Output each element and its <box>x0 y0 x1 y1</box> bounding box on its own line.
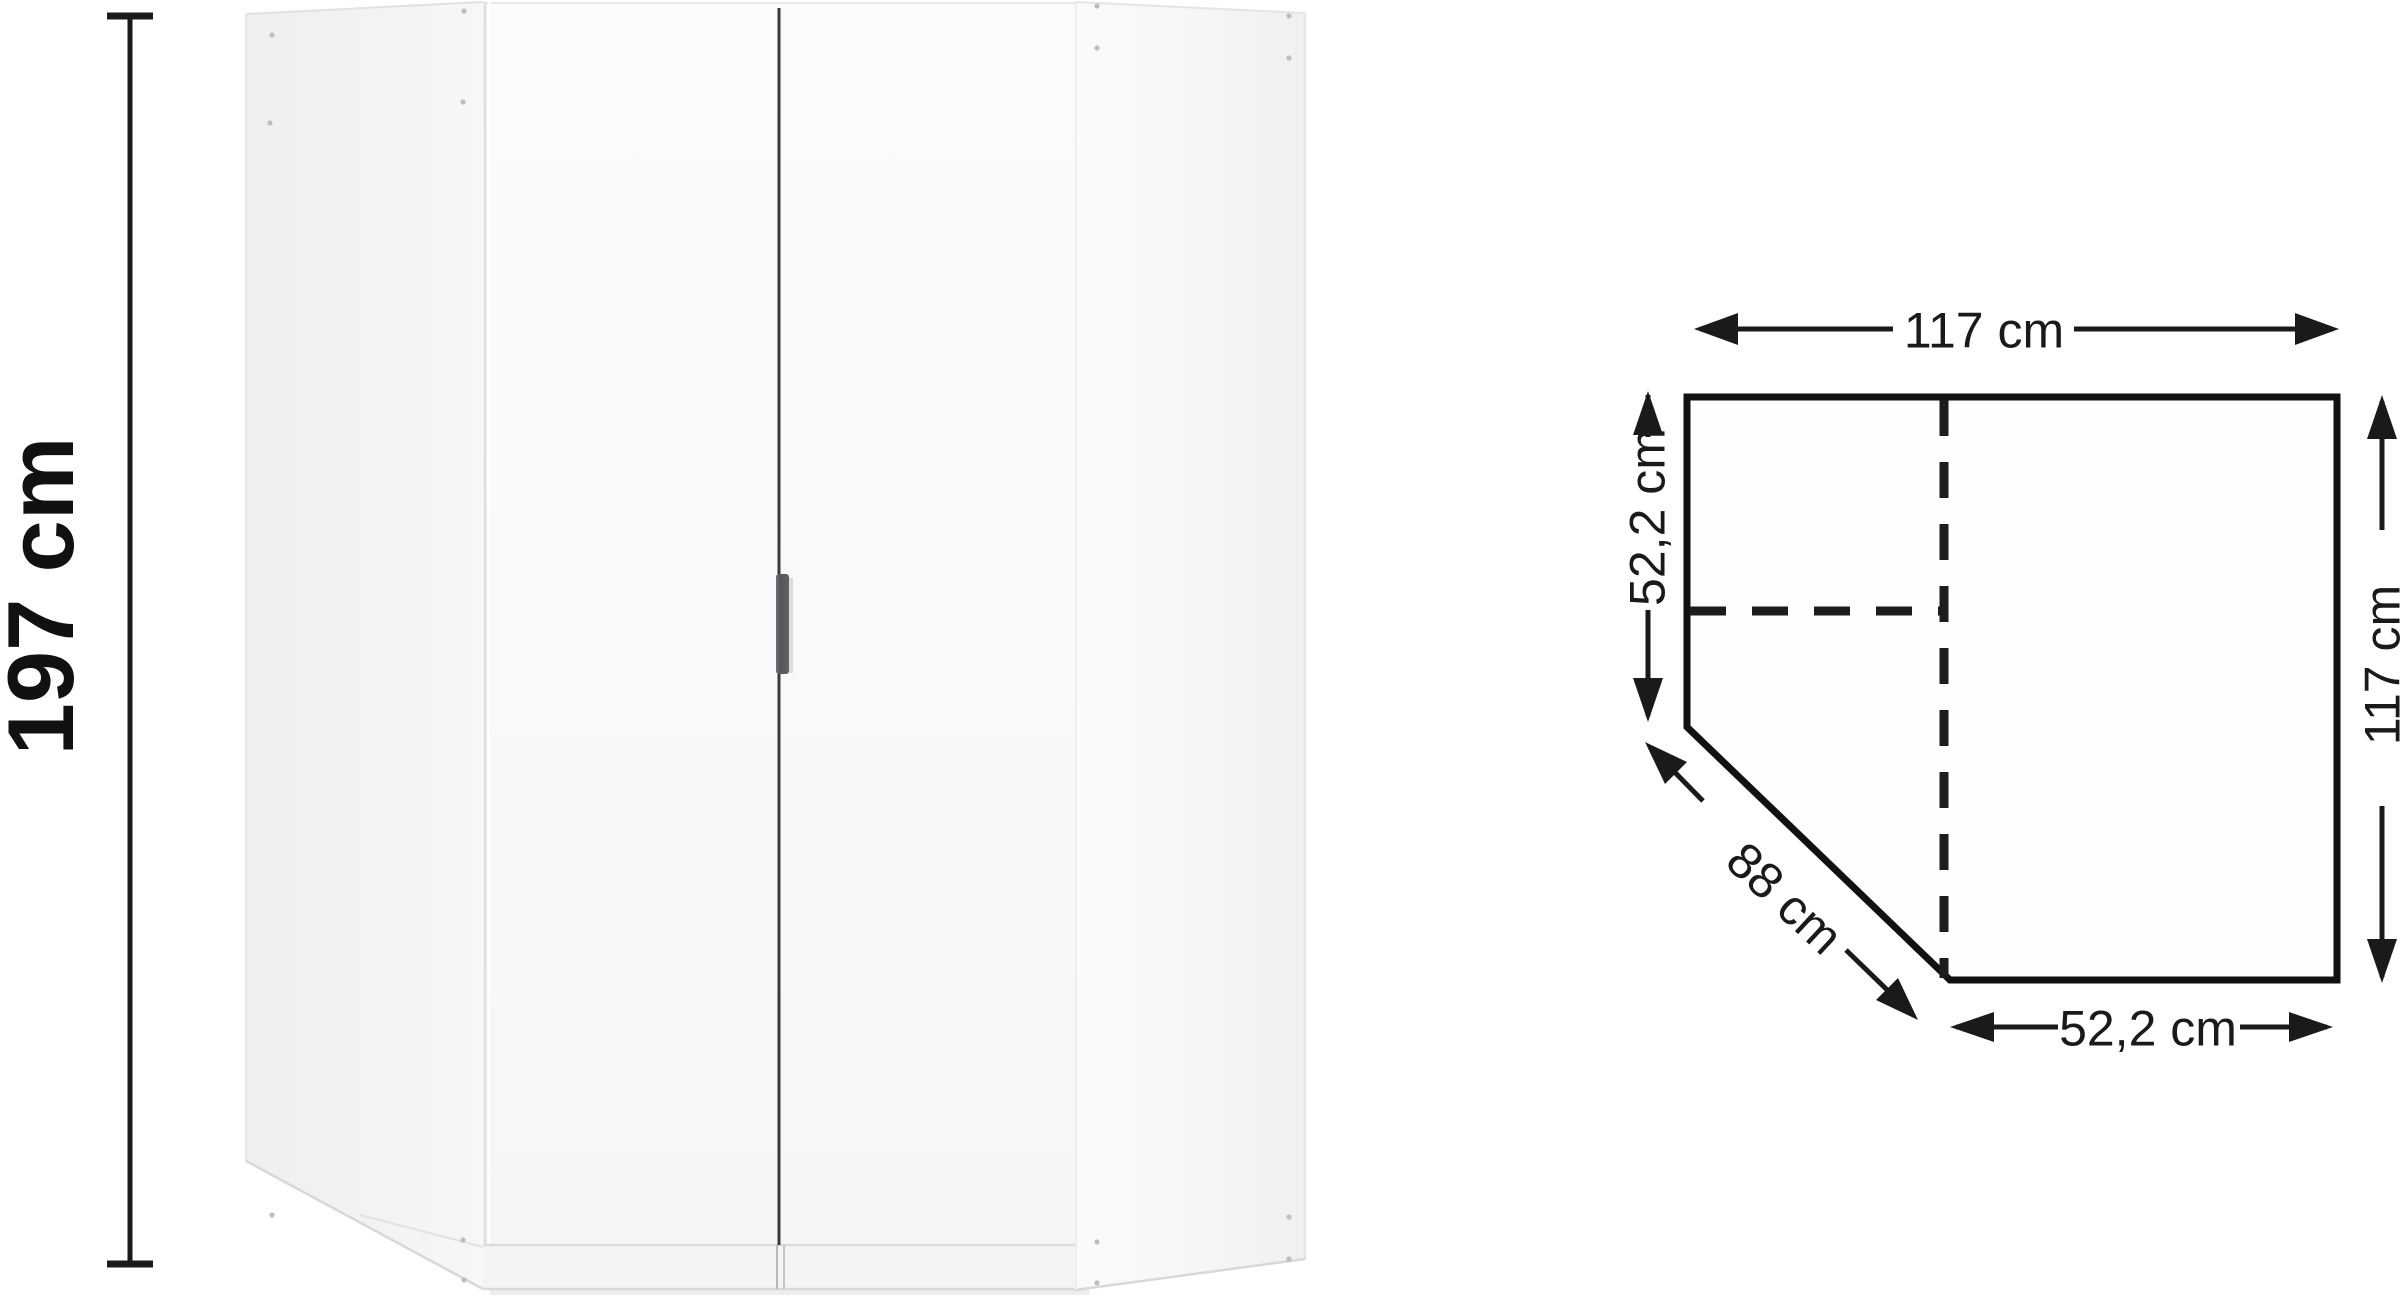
floor-shadow <box>490 1290 1090 1295</box>
depth-dimension-left: 52,2 cm <box>1620 391 1676 722</box>
height-dimension-line <box>107 16 153 1264</box>
product-dimension-diagram: 197 cm 117 cm 52,2 cm <box>0 0 2400 1301</box>
wardrobe-front-doors <box>483 2 1075 1290</box>
front-width-dimension-bottom-label: 52,2 cm <box>2059 1001 2237 1057</box>
door-handle-shadow <box>789 578 793 673</box>
depth-dimension-left-label: 52,2 cm <box>1620 428 1676 606</box>
height-dimension: 197 cm <box>0 16 153 1264</box>
width-dimension-right: 117 cm <box>2355 395 2400 983</box>
width-dimension-top-label: 117 cm <box>1904 303 2064 359</box>
height-label: 197 cm <box>0 437 93 756</box>
width-dimension-right-label: 117 cm <box>2355 585 2400 745</box>
wardrobe-right-panel <box>1075 2 1305 1290</box>
wardrobe-illustration <box>246 2 1305 1295</box>
plinth <box>483 1246 1075 1289</box>
product-dimension-page: 197 cm 117 cm 52,2 cm <box>0 0 2400 1301</box>
door-handle <box>776 574 789 674</box>
wardrobe-left-panel <box>246 2 483 1289</box>
floor-plan: 117 cm 52,2 cm 117 cm 88 cm <box>1620 303 2400 1057</box>
width-dimension-top: 117 cm <box>1694 303 2339 359</box>
front-width-dimension-bottom: 52,2 cm <box>1950 1001 2333 1057</box>
